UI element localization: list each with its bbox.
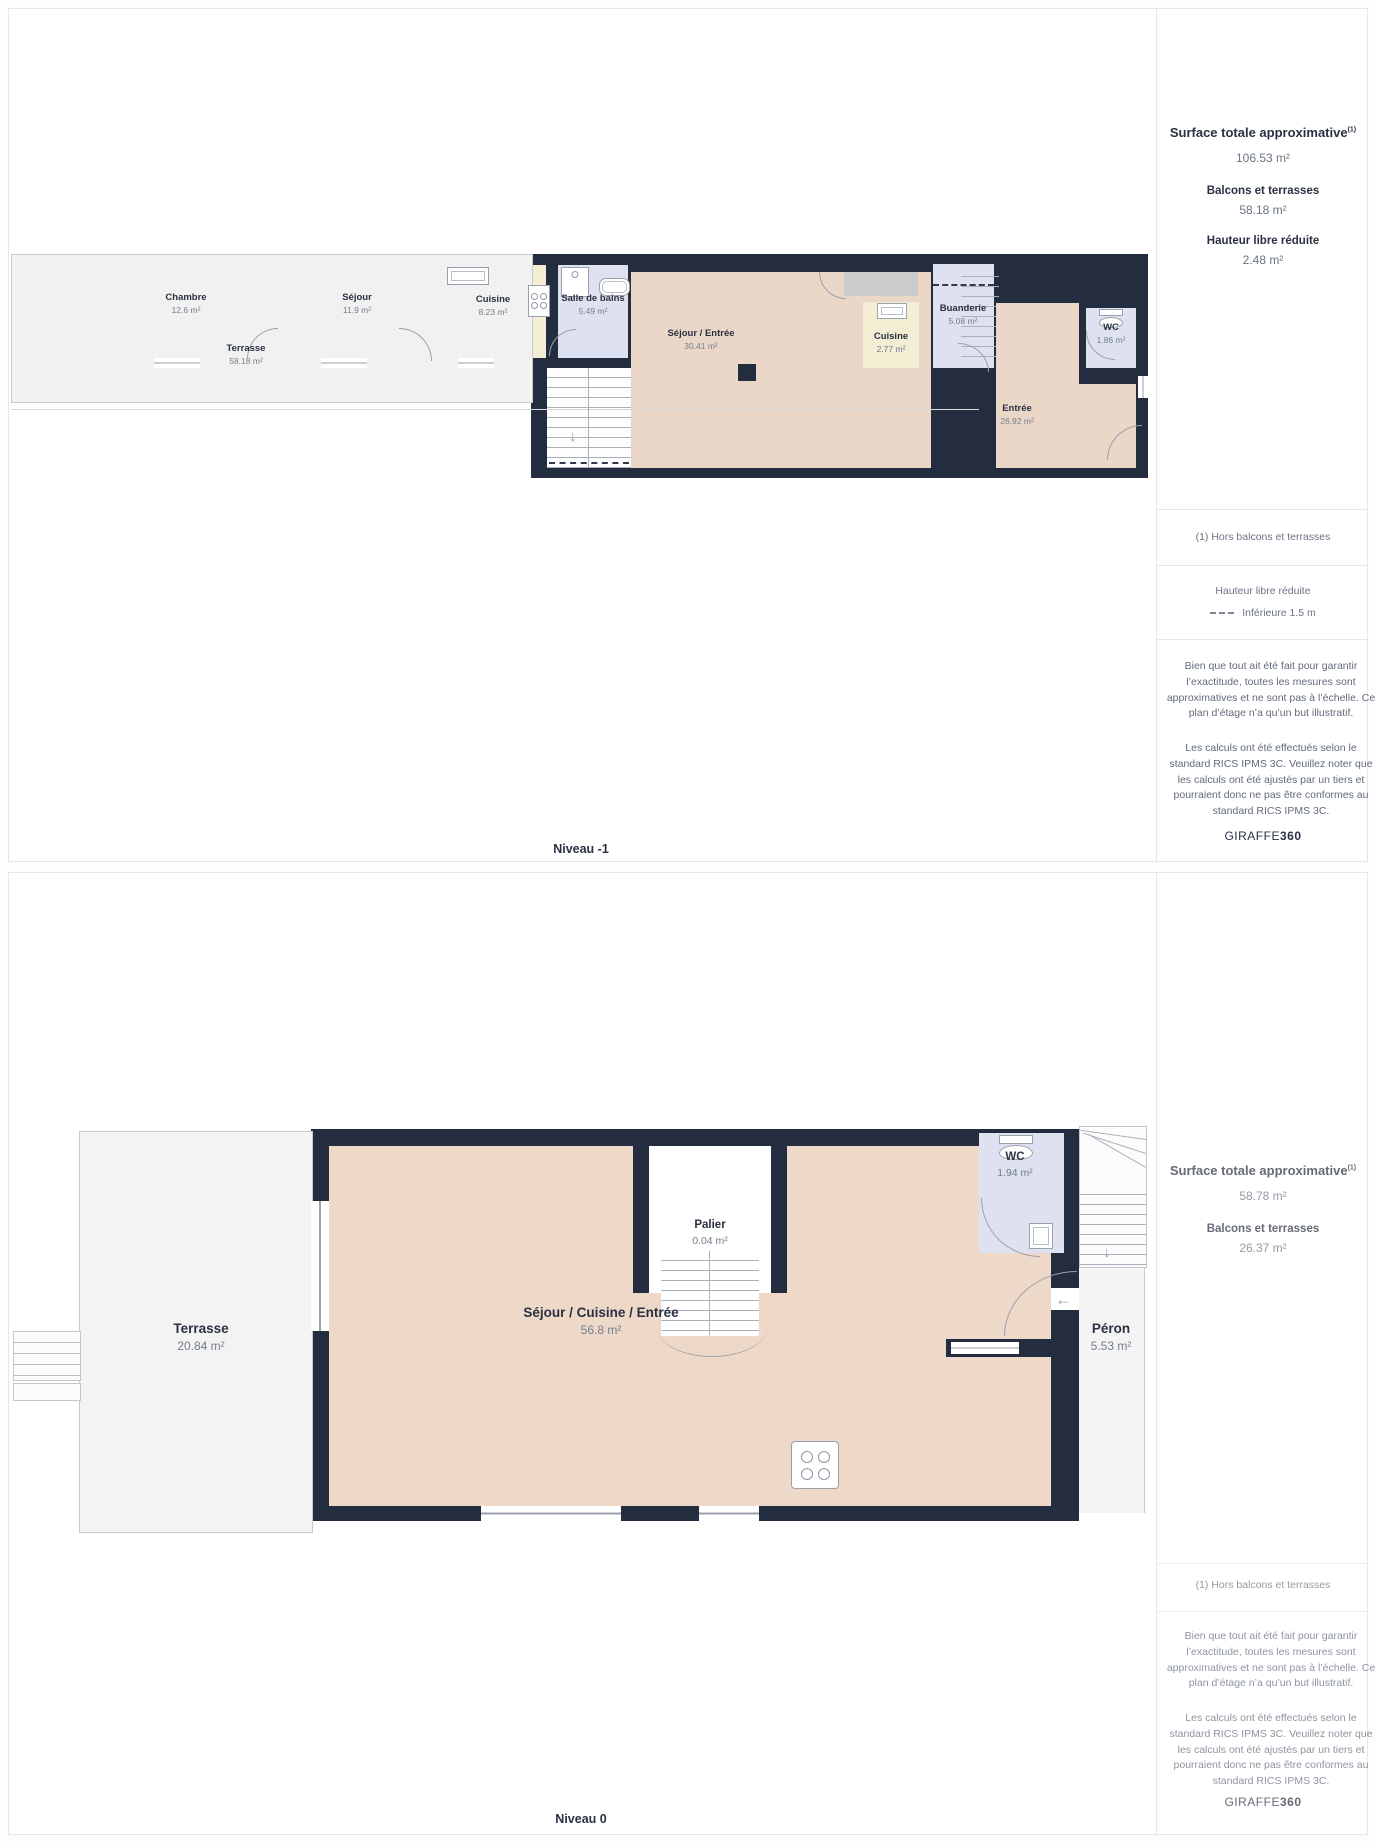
floorplan-panel-niveau-0: WC1.94 m² ↓ ← Terrasse20.84 m² Palier0.0…: [8, 872, 1368, 1835]
reduced-height-dashed-line: [549, 462, 629, 464]
disclaimer-standard: Les calculs ont été effectués selon le s…: [1157, 741, 1376, 820]
disclaimer-measures: Bien que tout ait été fait pour garantir…: [1157, 1629, 1376, 1692]
balconies-value: 58.18 m²: [1157, 203, 1369, 217]
footnote: (1) Hors balcons et terrasses: [1157, 1579, 1369, 1591]
giraffe360-logo: GIRAFFE360: [1157, 829, 1369, 843]
section-divider: [1157, 639, 1369, 640]
reduced-height-dashed-line: [933, 284, 994, 286]
room-label-terrasse: Terrasse58.18 m²: [227, 343, 266, 367]
floor-plan-page: { "panels": [ { "level_label": "Niveau -…: [0, 0, 1376, 1842]
total-area-heading: Surface totale approximative(1): [1157, 125, 1369, 140]
legend-row: Inférieure 1.5 m: [1157, 607, 1369, 619]
floorplan-panel-niveau-minus-1: ↓ Chambre12.6 m² Séjour11.9 m² Cuisine8.…: [8, 8, 1368, 862]
summary-sidebar: Surface totale approximative(1) 58.78 m²…: [1157, 873, 1369, 1836]
arrow-down-icon: ↓: [569, 429, 577, 444]
room-label-wc: WC1.86 m²: [1097, 322, 1126, 346]
room-label-sejour: Séjour11.9 m²: [342, 292, 372, 316]
window-icon: [311, 1201, 329, 1331]
arrow-left-icon: ←: [1055, 1291, 1072, 1308]
room-label-terrasse: Terrasse20.84 m²: [173, 1320, 228, 1354]
footnote: (1) Hors balcons et terrasses: [1157, 531, 1369, 543]
level-label: Niveau 0: [555, 1812, 606, 1826]
room-label-palier: Palier0.04 m²: [692, 1218, 728, 1248]
window-icon: [481, 1506, 621, 1521]
balconies-heading: Balcons et terrasses: [1157, 1223, 1369, 1235]
terrace-edge-line: [11, 409, 979, 410]
exterior-steps: [13, 1331, 81, 1381]
window-icon: [699, 1506, 759, 1521]
staircase-down: [547, 368, 631, 468]
exterior-steps: [13, 1383, 81, 1401]
balconies-heading: Balcons et terrasses: [1157, 185, 1369, 197]
disclaimer-measures: Bien que tout ait été fait pour garantir…: [1157, 659, 1376, 722]
room-entree: [996, 303, 1079, 468]
disclaimer-standard: Les calculs ont été effectués selon le s…: [1157, 1711, 1376, 1790]
room-label-sejour-entree: Séjour / Entrée30.41 m²: [667, 328, 734, 352]
total-area-value: 58.78 m²: [1157, 1189, 1369, 1203]
window-icon: [321, 358, 367, 368]
room-label-buanderie: Buanderie5.08 m²: [940, 303, 986, 327]
summary-sidebar: Surface totale approximative(1) 106.53 m…: [1157, 9, 1369, 863]
dashed-line-sample: [1210, 612, 1234, 614]
stove-icon: [791, 1441, 839, 1489]
stair-divider-line: [588, 368, 589, 468]
wc-wall: [1079, 296, 1086, 384]
exterior-staircase: [1079, 1126, 1147, 1268]
giraffe360-logo: GIRAFFE360: [1157, 1795, 1369, 1809]
reduced-height-value: 2.48 m²: [1157, 253, 1369, 267]
room-label-salle-de-bains: Salle de bains5.49 m²: [561, 293, 624, 317]
reduced-height-heading: Hauteur libre réduite: [1157, 235, 1369, 247]
room-label-wc: WC1.94 m²: [997, 1150, 1033, 1180]
window-icon: [1138, 376, 1148, 398]
balconies-value: 26.37 m²: [1157, 1241, 1369, 1255]
section-divider: [1157, 565, 1369, 566]
area-peron: [1079, 1266, 1145, 1513]
total-area-value: 106.53 m²: [1157, 151, 1369, 165]
sink-icon: [447, 267, 489, 285]
legend-heading: Hauteur libre réduite: [1157, 585, 1369, 597]
room-label-chambre: Chambre12.6 m²: [165, 292, 206, 316]
window-icon: [154, 358, 200, 368]
stove-icon: [528, 285, 550, 317]
room-label-peron: Péron5.53 m²: [1091, 1320, 1132, 1354]
room-label-cuisine-2: Cuisine2.77 m²: [874, 331, 908, 355]
room-label-entree: Entrée26.92 m²: [1000, 403, 1034, 427]
room-label-sejour-cuisine-entree: Séjour / Cuisine / Entrée56.8 m²: [523, 1304, 678, 1338]
section-divider: [1157, 1563, 1369, 1564]
low-height-zone: [844, 272, 918, 296]
level-label: Niveau -1: [553, 842, 609, 856]
window-icon: [951, 1342, 1019, 1354]
wc-wall: [1079, 296, 1148, 308]
sink-icon: [877, 303, 907, 319]
wc-wall: [1086, 368, 1136, 376]
window-icon: [458, 358, 494, 368]
section-divider: [1157, 509, 1369, 510]
arrow-down-icon: ↓: [1103, 1245, 1111, 1260]
section-divider: [1157, 1611, 1369, 1612]
total-area-heading: Surface totale approximative(1): [1157, 1163, 1369, 1178]
room-label-cuisine: Cuisine8.23 m²: [476, 294, 510, 318]
column: [738, 364, 756, 381]
